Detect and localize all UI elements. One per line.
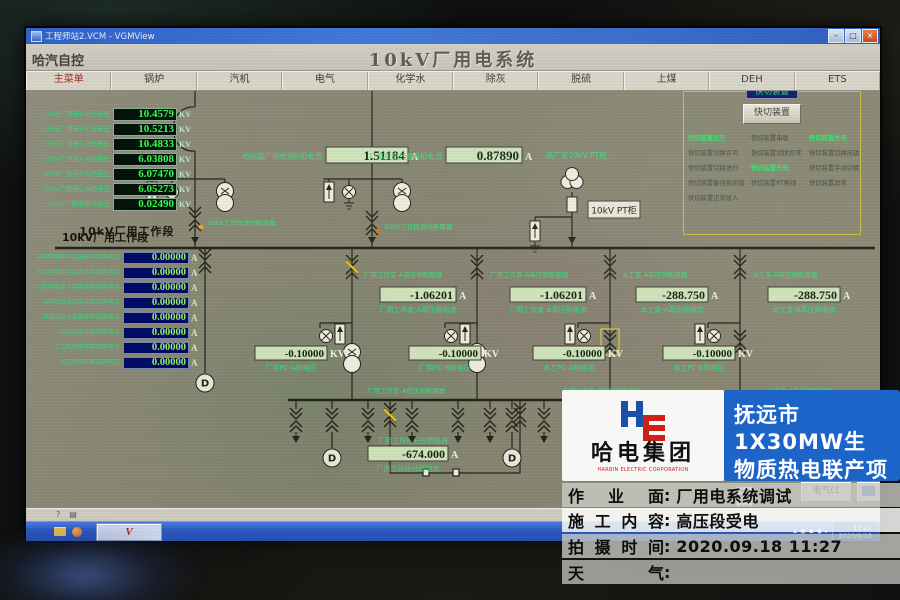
fsw-status-3-2: 快切装置异常 <box>809 178 862 187</box>
info-label: 施工内容 <box>568 508 664 532</box>
bus-voltage-panel: 10kV厂用电A-B线电压10.4579KV10kV厂用电B-C线电压10.52… <box>26 107 191 212</box>
work-label: 二次风机高压柜回路电流 <box>28 345 120 351</box>
project-name-box: 抚远市1X30MW生 物质热电联产项目 <box>724 390 900 481</box>
info-value: 2020.09.18 11:27 <box>676 537 842 556</box>
company-name-english: HARBIN ELECTRIC CORPORATION <box>597 467 688 473</box>
voltage-unit: KV <box>179 155 191 164</box>
fsw-status-2-1: 快切装置失电 <box>751 163 808 172</box>
media-player-icon[interactable] <box>72 527 82 537</box>
voltage-unit: KV <box>179 140 191 149</box>
voltage-row-5: 10kV厂用电C-N相电压6.05273KV <box>26 182 191 196</box>
measurement-9-unit: KV <box>738 349 754 360</box>
work-row-7: 引风机高压柜回路电流0.00000A <box>28 356 226 369</box>
work-row-4: B电动给水泵高压柜回路电流0.00000A <box>28 311 226 324</box>
window-titlebar: 工程师站2.VCM - VGMView – □ × <box>26 28 880 44</box>
work-row-2: C热网循环水泵高压柜回路电流0.00000A <box>28 281 226 294</box>
fsw-status-4-0: 快切装置正常投入 <box>688 193 750 202</box>
app-icon <box>31 31 42 42</box>
voltage-row-6: 10kV厂用电零序电压0.02490KV <box>26 197 191 211</box>
harbin-electric-logo <box>619 400 667 442</box>
voltage-value: 0.02490 <box>113 198 177 211</box>
fast-transfer-status-grid: 快切装置远方快切装置串联快切装置失电快切装置切换许可快切装置切换异常快切装置切换… <box>684 124 860 202</box>
work-unit: A <box>191 313 198 323</box>
work-value: 0.00000 <box>123 342 189 354</box>
fsw-status-0-1: 快切装置串联 <box>751 133 808 142</box>
work-label: C热网循环水泵高压柜回路电流 <box>28 285 120 291</box>
measurement-9-label: 水工PC-B段电压 <box>673 363 724 372</box>
info-row-weather: 天气: <box>562 560 900 584</box>
info-colon: : <box>664 563 670 582</box>
voltage-row-2: 10kV厂用电C-A线电压10.4833KV <box>26 137 191 151</box>
measurement-5-value: -288.750 <box>794 288 837 302</box>
measurement-6-value: -0.10000 <box>285 348 325 360</box>
voltage-row-1: 10kV厂用电B-C线电压10.5213KV <box>26 122 191 136</box>
info-value: 厂用电系统调试 <box>676 483 792 507</box>
menu-item-1[interactable]: 锅炉 <box>111 72 196 90</box>
info-colon: : <box>664 511 670 530</box>
menu-item-8[interactable]: DEH <box>709 72 794 90</box>
voltage-label: 10kV厂用电A-B线电压 <box>26 111 110 118</box>
menu-item-7[interactable]: 上煤 <box>624 72 709 90</box>
work-label: A电动给水泵高压柜回路电流 <box>28 300 120 306</box>
app-header: 哈汽自控 10kV厂用电系统 <box>26 44 880 71</box>
fsw-status-1-0: 快切装置切换许可 <box>688 148 750 157</box>
measurement-2-unit: A <box>459 291 467 302</box>
measurement-8-unit: KV <box>608 349 624 360</box>
diagram-label-4: 水工变-A高压侧断路器 <box>622 270 688 279</box>
fsw-status-2-2: 快切装置手动切换 <box>809 163 862 172</box>
work-unit: A <box>191 298 198 308</box>
work-row-0: A热网循环水泵高压柜回路电流0.00000A <box>28 251 226 264</box>
work-value: 0.00000 <box>123 282 189 294</box>
measurement-10-unit: A <box>451 450 459 461</box>
watermark-brand-row: 哈电集团 HARBIN ELECTRIC CORPORATION 抚远市1X30… <box>562 390 900 481</box>
menu-item-2[interactable]: 汽机 <box>197 72 282 90</box>
measurement-5-unit: A <box>843 291 851 302</box>
work-value: 0.00000 <box>123 297 189 309</box>
info-colon: : <box>664 537 670 556</box>
work-label: B电动给水泵高压柜回路电流 <box>28 315 120 321</box>
diagram-label-3: 厂用工作变-B高压侧断路器 <box>490 270 569 279</box>
fsw-status-4-2 <box>809 193 862 202</box>
diagram-label-1: 10kV工作段进线断路器 <box>384 222 453 231</box>
close-button[interactable]: × <box>862 29 878 43</box>
voltage-label: 10kV厂用电A-N相电压 <box>26 156 110 163</box>
menu-item-9[interactable]: ETS <box>795 72 880 90</box>
voltage-value: 10.4579 <box>113 108 177 121</box>
voltage-unit: KV <box>179 170 191 179</box>
fsw-status-4-1 <box>751 193 808 202</box>
diagram-label-6: 厂用工作变-A低压侧断路器 <box>367 386 446 395</box>
measurement-6-label: 厂用PC-A段电压 <box>265 363 316 372</box>
measurement-0-label: 电抗器厂用电侧B相电流 <box>242 151 323 161</box>
measurement-1-value: 0.87890 <box>477 148 519 163</box>
info-row-workface: 作业面: 厂用电系统调试 <box>562 483 900 507</box>
work-value: 0.00000 <box>123 252 189 264</box>
work-unit: A <box>191 358 198 368</box>
measurement-7-value: -0.10000 <box>439 348 479 360</box>
info-colon: : <box>664 486 670 505</box>
work-unit: A <box>191 328 198 338</box>
voltage-value: 6.03808 <box>113 153 177 166</box>
work-value: 0.00000 <box>123 267 189 279</box>
window-title: 工程师站2.VCM - VGMView <box>45 30 827 42</box>
work-section-title: 10kV厂用工作段 <box>28 223 226 239</box>
info-label: 天气 <box>568 560 664 584</box>
page-title: 10kV厂用电系统 <box>26 46 880 72</box>
fast-transfer-panel: 快切装置 快切装置 快切装置远方快切装置串联快切装置失电快切装置切换许可快切装置… <box>683 91 861 235</box>
voltage-value: 10.5213 <box>113 123 177 136</box>
measurement-10-label: 厂用工作段分段电流 <box>377 464 440 473</box>
company-name: 哈电集团 <box>591 442 695 465</box>
menu-item-3[interactable]: 电气 <box>282 72 367 90</box>
fsw-status-1-1: 快切装置切换异常 <box>751 148 808 157</box>
work-section-panel: 10kV厂用工作段 A热网循环水泵高压柜回路电流0.00000AB热网循环水泵高… <box>28 223 226 371</box>
fast-transfer-button[interactable]: 快切装置 <box>743 104 801 124</box>
voltage-value: 6.05273 <box>113 183 177 196</box>
voltage-label: 10kV厂用电C-A线电压 <box>26 141 110 148</box>
info-label: 拍摄时间 <box>568 534 664 558</box>
work-unit: A <box>191 253 198 263</box>
measurement-2-value: -1.06201 <box>410 288 453 302</box>
work-label: B热网循环水泵高压柜回路电流 <box>28 270 120 276</box>
measurement-4-unit: A <box>711 291 719 302</box>
grille-icon[interactable]: ▤ <box>69 510 77 520</box>
voltage-label: 10kV厂用电B-C线电压 <box>26 126 110 133</box>
voltage-unit: KV <box>179 185 191 194</box>
measurement-1-label: 厂高变低压侧B相电流 <box>369 151 442 161</box>
pt-cabinet-label: 10kV PT柜 <box>591 205 637 217</box>
work-label: A热网循环水泵高压柜回路电流 <box>28 255 120 261</box>
fsw-status-2-0: 快切装置切换进行 <box>688 163 750 172</box>
fsw-status-1-2: 快切装置切换闭锁 <box>809 148 862 157</box>
photo-of-monitor: 工程师站2.VCM - VGMView – □ × 哈汽自控 10kV厂用电系统… <box>0 0 900 600</box>
fast-transfer-panel-title: 快切装置 <box>746 91 798 99</box>
work-label: 一次风机高压柜回路电流 <box>28 330 120 336</box>
info-row-content: 施工内容: 高压段受电 <box>562 508 900 532</box>
menu-bar: 主菜单锅炉汽机电气化学水除灰脱硫上煤DEHETS <box>26 71 880 91</box>
measurement-7-label: 厂用PC-B段电压 <box>419 363 470 372</box>
folder-icon[interactable] <box>54 527 66 536</box>
measurement-4-value: -288.750 <box>662 288 705 302</box>
voltage-value: 10.4833 <box>113 138 177 151</box>
measurement-8-value: -0.10000 <box>563 348 603 360</box>
diagram-label-5: 水工变-B高压侧断路器 <box>752 270 818 279</box>
measurement-3-label: 厂用工作变-B高压侧电流 <box>509 305 586 314</box>
measurement-7-unit: KV <box>484 349 500 360</box>
work-unit: A <box>191 283 198 293</box>
measurement-5-label: 水工变-B高压侧电流 <box>772 305 835 314</box>
work-value: 0.00000 <box>123 327 189 339</box>
voltage-row-0: 10kV厂用电A-B线电压10.4579KV <box>26 107 191 121</box>
work-row-3: A电动给水泵高压柜回路电流0.00000A <box>28 296 226 309</box>
work-unit: A <box>191 343 198 353</box>
voltage-row-4: 10kV厂用电B-N相电压6.07470KV <box>26 167 191 181</box>
help-icon[interactable]: ? <box>56 510 60 520</box>
measurement-8-label: 水工PC-A段电压 <box>543 363 594 372</box>
work-row-1: B热网循环水泵高压柜回路电流0.00000A <box>28 266 226 279</box>
work-value: 0.00000 <box>123 312 189 324</box>
quick-launch <box>54 527 82 537</box>
voltage-unit: KV <box>179 200 191 209</box>
voltage-unit: KV <box>179 110 191 119</box>
measurement-4-label: 水工变-A高压侧电流 <box>640 305 703 314</box>
work-row-5: 一次风机高压柜回路电流0.00000A <box>28 326 226 339</box>
work-unit: A <box>191 268 198 278</box>
measurement-3-unit: A <box>589 291 597 302</box>
info-row-datetime: 拍摄时间: 2020.09.18 11:27 <box>562 534 900 558</box>
voltage-label: 10kV厂用电零序电压 <box>26 201 110 208</box>
measurement-2-label: 厂用工作变-A高压侧电流 <box>379 305 456 314</box>
info-value: 高压段受电 <box>676 508 759 532</box>
info-label: 作业面 <box>568 483 664 507</box>
measurement-1-unit: A <box>525 152 533 163</box>
measurement-10-value: -674.000 <box>402 447 445 461</box>
voltage-unit: KV <box>179 125 191 134</box>
menu-item-6[interactable]: 脱硫 <box>538 72 623 90</box>
voltage-row-3: 10kV厂用电A-N相电压6.03808KV <box>26 152 191 166</box>
measurement-3-value: -1.06201 <box>540 288 583 302</box>
fsw-status-3-1: 快切装置PT断线 <box>751 178 808 187</box>
maximize-button[interactable]: □ <box>845 29 861 43</box>
measurement-6-unit: KV <box>330 349 346 360</box>
menu-item-5[interactable]: 除灰 <box>453 72 538 90</box>
work-row-6: 二次风机高压柜回路电流0.00000A <box>28 341 226 354</box>
work-label: 引风机高压柜回路电流 <box>28 360 120 366</box>
task-button-vgmview[interactable]: V <box>96 523 162 541</box>
company-logo-box: 哈电集团 HARBIN ELECTRIC CORPORATION <box>562 390 724 481</box>
voltage-label: 10kV厂用电B-N相电压 <box>26 171 110 178</box>
menu-item-4[interactable]: 化学水 <box>368 72 453 90</box>
fsw-status-3-0: 快切装置备自投闭锁 <box>688 178 750 187</box>
fsw-status-0-0: 快切装置远方 <box>688 133 750 142</box>
menu-item-0[interactable]: 主菜单 <box>26 72 111 90</box>
project-line-1: 抚远市1X30MW生 <box>734 402 900 457</box>
fsw-status-0-2: 快切装置失电 <box>809 133 862 142</box>
minimize-button[interactable]: – <box>828 29 844 43</box>
diagram-label-2: 厂用工作变-A高压侧断路器 <box>364 270 443 279</box>
voltage-value: 6.07470 <box>113 168 177 181</box>
work-value: 0.00000 <box>123 357 189 369</box>
diagram-label-10: 高厂变10kV PT柜 <box>546 150 607 160</box>
voltage-label: 10kV厂用电C-N相电压 <box>26 186 110 193</box>
measurement-9-value: -0.10000 <box>693 348 733 360</box>
